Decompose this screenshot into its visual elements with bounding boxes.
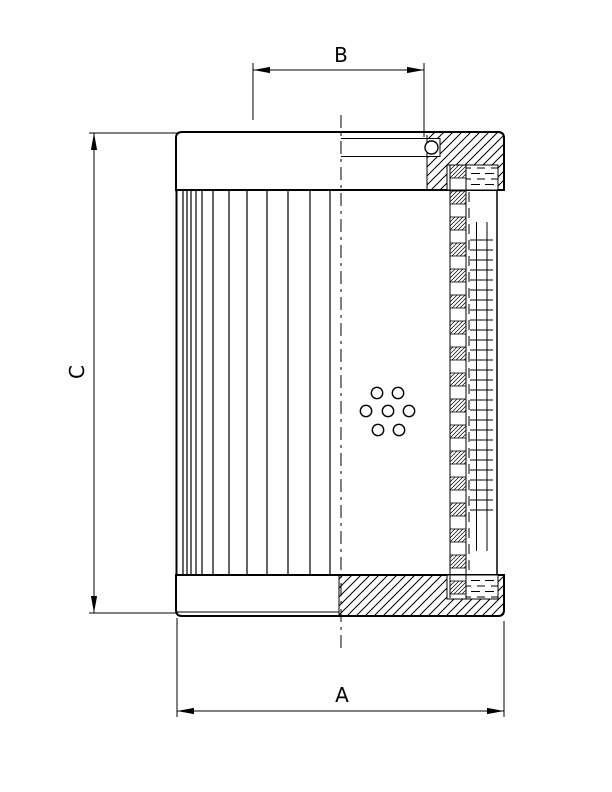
- drain-hole: [393, 424, 404, 435]
- dimension-a: A: [177, 618, 504, 717]
- dim-b-arrow-left: [253, 67, 270, 73]
- dim-c-label: C: [65, 365, 89, 379]
- core-tube-hatched-segment: [450, 243, 466, 256]
- technical-drawing-svg: B C A: [0, 0, 612, 792]
- drain-hole: [372, 424, 383, 435]
- core-tube-hatched-segment: [450, 347, 466, 360]
- wire-mesh: [470, 222, 493, 551]
- core-tube-hatched-segment: [450, 399, 466, 412]
- drain-hole: [360, 405, 371, 416]
- core-tube-hatched-segment: [450, 269, 466, 282]
- bottom-seal-gasket: [466, 575, 498, 599]
- dim-c-arrow-top: [91, 133, 97, 150]
- core-tube-hatched-segment: [450, 321, 466, 334]
- top-end-cap: [176, 132, 504, 190]
- core-tube-segments: [450, 165, 466, 594]
- dim-b-label: B: [334, 43, 348, 67]
- core-tube-hatched-segment: [450, 477, 466, 490]
- dimension-c: C: [65, 133, 177, 613]
- pleated-media: [183, 190, 330, 575]
- element-body: [177, 165, 498, 598]
- core-tube-hatched-segment: [450, 451, 466, 464]
- drain-hole: [382, 405, 393, 416]
- core-tube-hatched-segment: [450, 165, 466, 178]
- core-tube: [450, 165, 469, 598]
- drain-hole: [371, 387, 382, 398]
- drawing-page: B C A: [0, 0, 612, 792]
- core-tube-hatched-segment: [450, 373, 466, 386]
- port-slot: [341, 139, 427, 157]
- core-tube-hatched-segment: [450, 191, 466, 204]
- core-tube-hatched-segment: [450, 295, 466, 308]
- dim-c-arrow-bottom: [91, 596, 97, 613]
- drain-hole: [403, 405, 414, 416]
- o-ring: [425, 141, 438, 154]
- top-seal-gasket: [466, 165, 498, 190]
- dim-a-arrow-left: [177, 708, 194, 714]
- dim-b-arrow-right: [407, 67, 424, 73]
- dim-a-arrow-right: [487, 708, 504, 714]
- core-tube-hatched-segment: [450, 503, 466, 516]
- dim-a-label: A: [335, 683, 349, 707]
- core-tube-hatched-segment: [450, 217, 466, 230]
- drain-holes: [360, 387, 414, 435]
- drain-hole: [392, 387, 403, 398]
- core-tube-hatched-segment: [450, 529, 466, 542]
- core-tube-hatched-segment: [450, 425, 466, 438]
- core-tube-hatched-segment: [450, 555, 466, 568]
- core-tube-hatched-segment: [450, 581, 466, 594]
- dimension-b: B: [253, 43, 424, 137]
